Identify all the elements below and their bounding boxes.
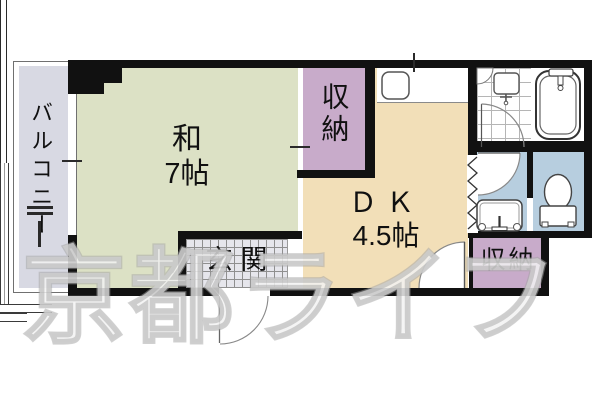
watermark-text: 京都ライフ [22, 212, 600, 363]
japanese-room-label: 和 7帖 [137, 124, 237, 189]
window-tick [413, 53, 415, 72]
bathtub-area [531, 68, 584, 141]
kitchen-counter [377, 68, 468, 103]
floor-plan: バルコニー 和 7帖 収納 ＤＫ 4.5帖 玄関 収納 京都ライフ [0, 0, 600, 400]
storage-top-label: 収納 [319, 82, 348, 162]
japanese-room-area: 7帖 [164, 159, 209, 189]
wall-storage-right [365, 60, 375, 178]
window-tick [62, 160, 82, 162]
wall-washroom-toilet [527, 152, 533, 198]
wall-bath-bottom [477, 141, 584, 152]
sliding-door-tick [290, 146, 310, 148]
wall-dk-bath [468, 60, 477, 157]
wall-corner-step [104, 60, 122, 83]
wall-storage-bottom [297, 170, 375, 178]
japanese-room-name: 和 [172, 124, 202, 156]
sliding-door-partition [0, 0, 7, 163]
window-balcony [0, 163, 9, 304]
wall-corner-block [68, 60, 104, 94]
wall-top [68, 60, 592, 68]
